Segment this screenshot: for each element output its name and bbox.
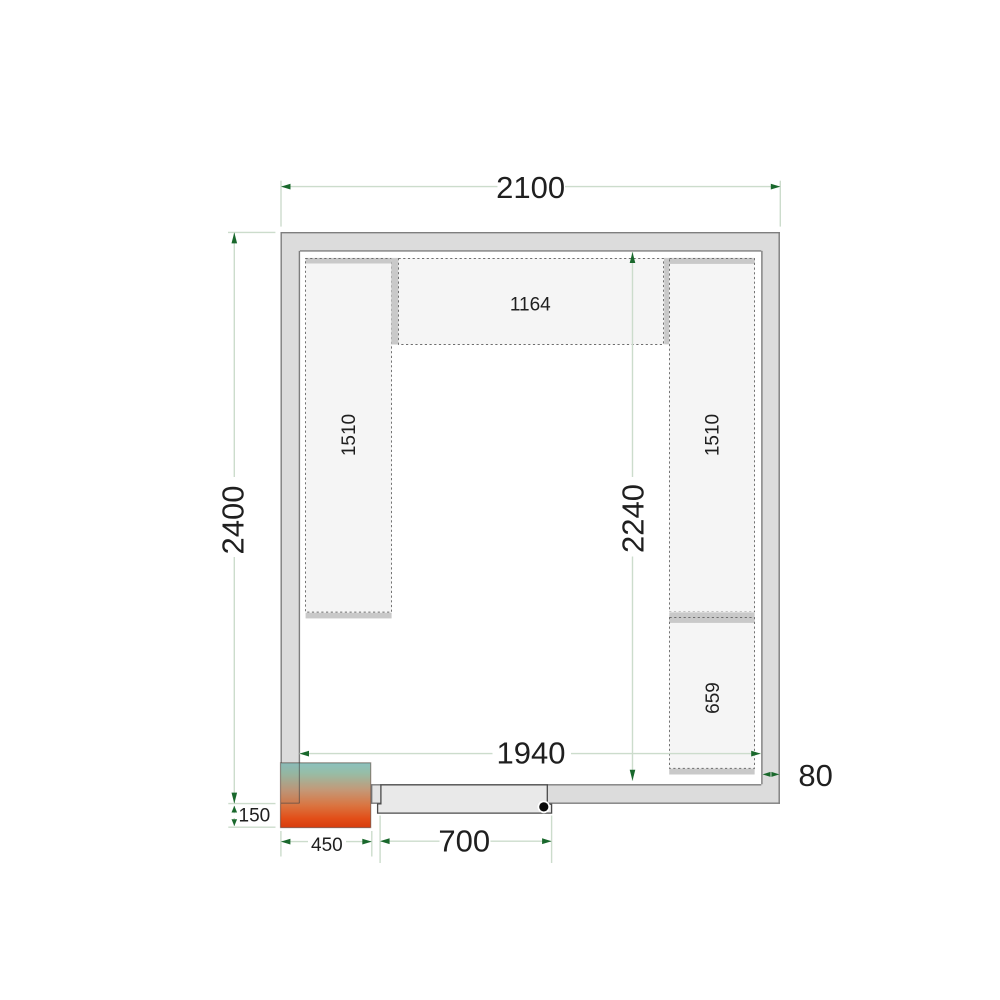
svg-text:2100: 2100 <box>496 170 565 205</box>
svg-text:700: 700 <box>438 824 490 859</box>
svg-text:1510: 1510 <box>703 414 724 456</box>
svg-text:659: 659 <box>703 682 724 714</box>
svg-text:1164: 1164 <box>510 295 551 316</box>
svg-text:1940: 1940 <box>497 736 566 771</box>
svg-text:1510: 1510 <box>339 414 360 456</box>
svg-text:80: 80 <box>798 758 832 793</box>
svg-text:2240: 2240 <box>615 484 650 553</box>
svg-text:450: 450 <box>311 835 343 856</box>
svg-text:150: 150 <box>239 806 271 827</box>
svg-text:2400: 2400 <box>216 486 251 555</box>
